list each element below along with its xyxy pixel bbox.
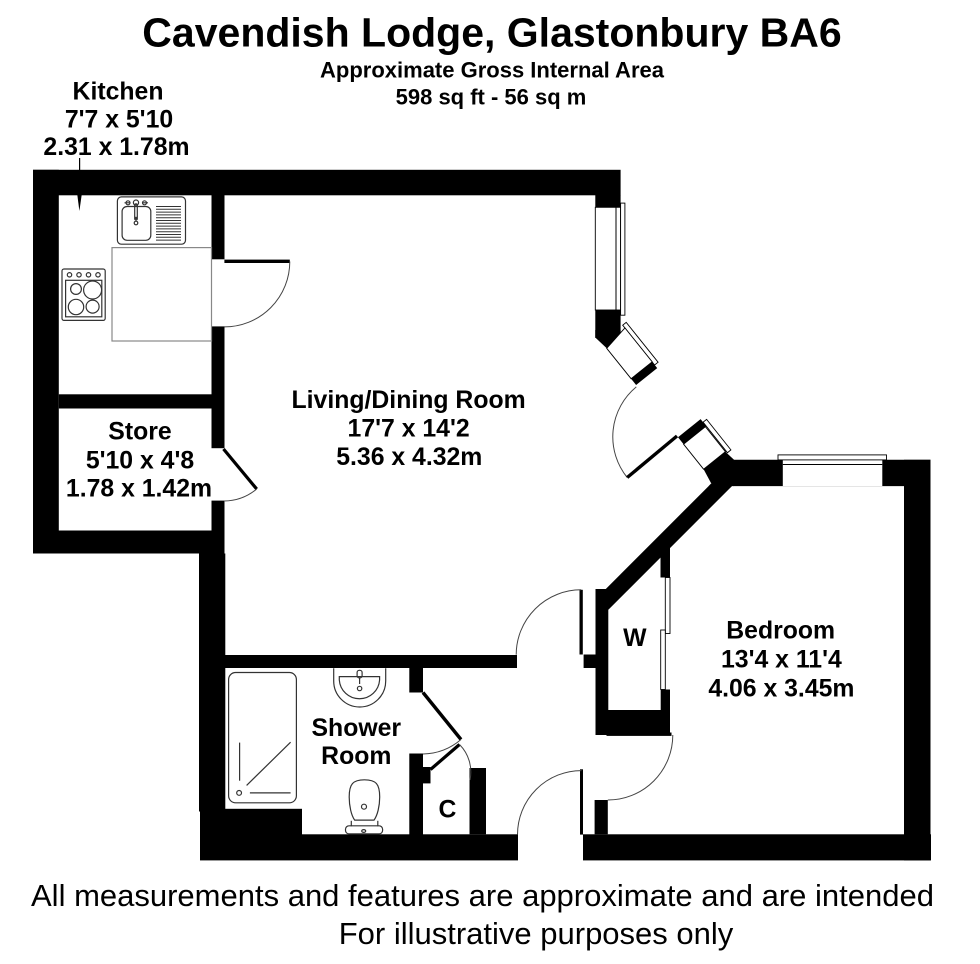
svg-text:Store: Store — [108, 418, 171, 445]
svg-text:5'10 x 4'8: 5'10 x 4'8 — [86, 447, 195, 474]
svg-text:7'7 x 5'10: 7'7 x 5'10 — [65, 106, 173, 133]
svg-text:Room: Room — [321, 743, 391, 770]
svg-text:W: W — [623, 625, 647, 652]
svg-text:For illustrative purposes only: For illustrative purposes only — [339, 916, 734, 951]
svg-text:Cavendish Lodge, Glastonbury B: Cavendish Lodge, Glastonbury BA6 — [142, 10, 841, 56]
svg-text:All measurements and features: All measurements and features are approx… — [31, 878, 934, 913]
svg-text:C: C — [439, 797, 457, 824]
svg-text:Bedroom: Bedroom — [726, 618, 835, 645]
svg-text:598 sq ft - 56 sq m: 598 sq ft - 56 sq m — [396, 85, 587, 110]
svg-text:17'7 x 14'2: 17'7 x 14'2 — [348, 416, 470, 443]
svg-text:13'4 x 11'4: 13'4 x 11'4 — [721, 647, 842, 674]
svg-text:2.31 x 1.78m: 2.31 x 1.78m — [43, 134, 189, 161]
svg-text:1.78 x 1.42m: 1.78 x 1.42m — [66, 475, 212, 502]
svg-text:Shower: Shower — [312, 715, 402, 742]
svg-text:Approximate Gross Internal Are: Approximate Gross Internal Area — [320, 58, 665, 83]
svg-text:Living/Dining Room: Living/Dining Room — [292, 387, 526, 414]
svg-text:5.36 x 4.32m: 5.36 x 4.32m — [336, 444, 482, 471]
svg-text:4.06 x 3.45m: 4.06 x 3.45m — [708, 675, 854, 702]
svg-text:Kitchen: Kitchen — [73, 78, 164, 105]
